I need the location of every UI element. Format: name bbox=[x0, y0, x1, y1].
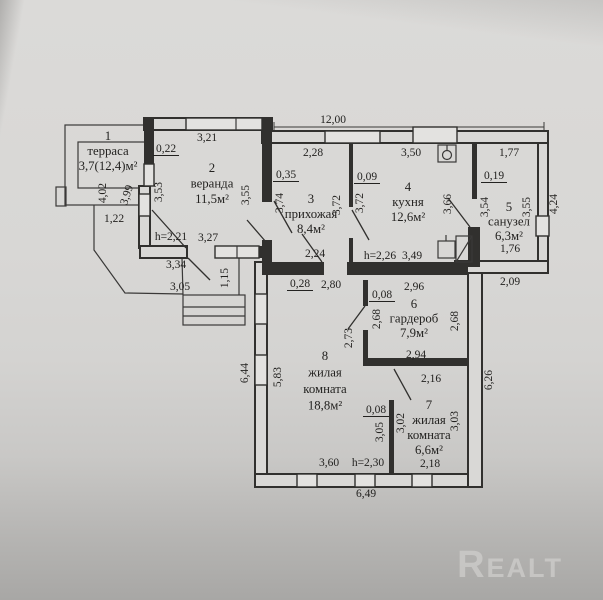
dimension-label: 12,00 bbox=[320, 114, 346, 126]
room-label: 12,6м² bbox=[391, 210, 425, 224]
dimension-label: 3,66 bbox=[442, 194, 454, 214]
interior-walls-part bbox=[389, 400, 394, 474]
door-leaves-part bbox=[352, 210, 369, 240]
dimension-label: 4,24 bbox=[548, 194, 560, 214]
room-label: 8 bbox=[322, 349, 328, 363]
dimension-label: 3,55 bbox=[240, 185, 252, 205]
room-label: 2 bbox=[209, 161, 215, 175]
dimension-label: 2,68 bbox=[449, 311, 461, 331]
stove-icon-part bbox=[438, 241, 455, 258]
room-label: 11,5м² bbox=[195, 192, 229, 206]
interior-walls-part bbox=[349, 143, 353, 207]
dimension-label: 2,24 bbox=[305, 248, 325, 260]
room-label: гардероб bbox=[390, 312, 439, 326]
room-label: 5 bbox=[506, 200, 512, 214]
dimension-label: 4,02 bbox=[97, 183, 109, 203]
dimension-label: 0,08 bbox=[366, 404, 386, 416]
dimension-label: 3,60 bbox=[319, 457, 339, 469]
dimension-label: 6,49 bbox=[356, 488, 376, 500]
windows-part bbox=[536, 216, 549, 236]
room-label: 1 bbox=[105, 129, 111, 143]
floorplan-photo: 12,003,210,222,283,501,770,350,090,194,0… bbox=[0, 0, 603, 600]
room-label: веранда bbox=[191, 177, 234, 191]
dimension-label: h=2,30 bbox=[352, 457, 385, 469]
dimension-label: 2,80 bbox=[321, 279, 341, 291]
door-leaves-part bbox=[394, 369, 411, 400]
dimension-label: 2,18 bbox=[420, 458, 440, 470]
dimension-label: 3,27 bbox=[198, 232, 218, 244]
windows-part bbox=[413, 127, 457, 143]
interior-walls-part bbox=[472, 143, 477, 199]
interior-walls-part bbox=[347, 262, 468, 275]
room-label: 6,6м² bbox=[415, 443, 443, 457]
interior-walls-part bbox=[144, 118, 154, 164]
sink-icon bbox=[438, 145, 456, 162]
windows-part bbox=[412, 474, 432, 487]
dimension-label: 3,34 bbox=[166, 259, 186, 271]
dimension-label: 1,22 bbox=[104, 213, 124, 225]
windows-part bbox=[325, 131, 380, 143]
dimension-label: 3,02 bbox=[395, 413, 407, 433]
stove-icon bbox=[438, 235, 455, 258]
room-label: 8,4м² bbox=[297, 222, 325, 236]
dimension-label: 0,19 bbox=[484, 170, 504, 182]
room-label: 4 bbox=[405, 180, 412, 194]
room-label: терраса bbox=[87, 144, 129, 158]
interior-walls-part bbox=[262, 118, 272, 202]
dimension-label: 1,76 bbox=[500, 243, 520, 255]
outer-walls-part bbox=[538, 143, 548, 273]
room-label: 7,9м² bbox=[400, 326, 428, 340]
room-label: прихожая bbox=[285, 207, 338, 221]
room-label: 3,7(12,4)м² bbox=[79, 159, 138, 173]
floor-plan-drawing: 12,003,210,222,283,501,770,350,090,194,0… bbox=[0, 0, 603, 600]
room-label: 6 bbox=[411, 297, 418, 311]
interior-walls-part bbox=[349, 238, 353, 264]
windows-part bbox=[297, 474, 317, 487]
interior-walls-part bbox=[363, 280, 368, 306]
dimension-label: 1,15 bbox=[219, 268, 231, 288]
dimension-label: 0,35 bbox=[276, 169, 296, 181]
dimension-label: 2,94 bbox=[406, 349, 426, 361]
dimension-label: 1,77 bbox=[499, 147, 519, 159]
room-label: санузел bbox=[488, 215, 530, 229]
dimension-label: 2,09 bbox=[500, 276, 520, 288]
dimension-label: 3,99 bbox=[118, 183, 136, 206]
outer-walls-part bbox=[262, 131, 548, 143]
interior-walls-part bbox=[468, 227, 480, 267]
dimension-label: 3,21 bbox=[197, 132, 217, 144]
dimension-label: 3,49 bbox=[402, 250, 422, 262]
room-label: 7 bbox=[426, 398, 433, 412]
stairs-icon-part bbox=[183, 295, 245, 325]
dimension-label: 2,73 bbox=[343, 328, 355, 348]
dimension-label: h=2,26 bbox=[364, 250, 397, 262]
dimension-label: 3,50 bbox=[401, 147, 421, 159]
outer-walls-part bbox=[468, 273, 482, 487]
dimension-label: 0,28 bbox=[290, 278, 310, 290]
windows-part bbox=[355, 474, 375, 487]
dimension-label: 0,22 bbox=[156, 143, 176, 155]
windows-part bbox=[255, 294, 267, 324]
dimension-label: 6,26 bbox=[483, 370, 495, 390]
windows-part bbox=[139, 194, 150, 216]
dimension-label: 0,08 bbox=[372, 289, 392, 301]
room-label: комната bbox=[303, 382, 347, 396]
stairs-icon bbox=[182, 258, 245, 325]
room-label: кухня bbox=[392, 195, 424, 209]
room-label: жилая bbox=[307, 366, 342, 380]
realt-watermark: Realt bbox=[457, 546, 563, 584]
door-leaves-part bbox=[247, 220, 266, 242]
dimension-label: 3,05 bbox=[170, 281, 190, 293]
dimension-label: 0,09 bbox=[357, 171, 377, 183]
interior-walls-part bbox=[259, 246, 272, 258]
dimension-label: 3,03 bbox=[449, 411, 461, 431]
door-leaves-part bbox=[348, 306, 365, 329]
dimension-labels: 12,003,210,222,283,501,770,350,090,194,0… bbox=[97, 114, 560, 500]
outer-walls-part bbox=[140, 246, 187, 258]
room-label: 3 bbox=[308, 192, 314, 206]
sink-icon-part bbox=[443, 151, 452, 160]
room-label: жилая bbox=[411, 413, 446, 427]
room-label: 18,8м² bbox=[308, 399, 342, 413]
interior-walls-part bbox=[262, 262, 324, 275]
door-leaves-part bbox=[188, 258, 210, 280]
dimension-label: 2,96 bbox=[404, 281, 424, 293]
windows-part bbox=[255, 355, 267, 385]
room-label: комната bbox=[407, 428, 451, 442]
windows-part bbox=[186, 118, 262, 130]
dimension-label: 3,53 bbox=[153, 182, 165, 202]
dimension-label: 6,44 bbox=[239, 363, 251, 383]
dimension-label: 2,28 bbox=[303, 147, 323, 159]
dimension-label: 2,16 bbox=[421, 373, 441, 385]
room-label: 6,3м² bbox=[495, 229, 523, 243]
dimension-label: 5,83 bbox=[272, 367, 284, 387]
dimension-label: 3,05 bbox=[374, 422, 386, 442]
dimension-label: 2,68 bbox=[371, 309, 383, 329]
dimension-label: h=2,21 bbox=[155, 231, 188, 243]
dimension-label: 3,72 bbox=[354, 193, 366, 213]
